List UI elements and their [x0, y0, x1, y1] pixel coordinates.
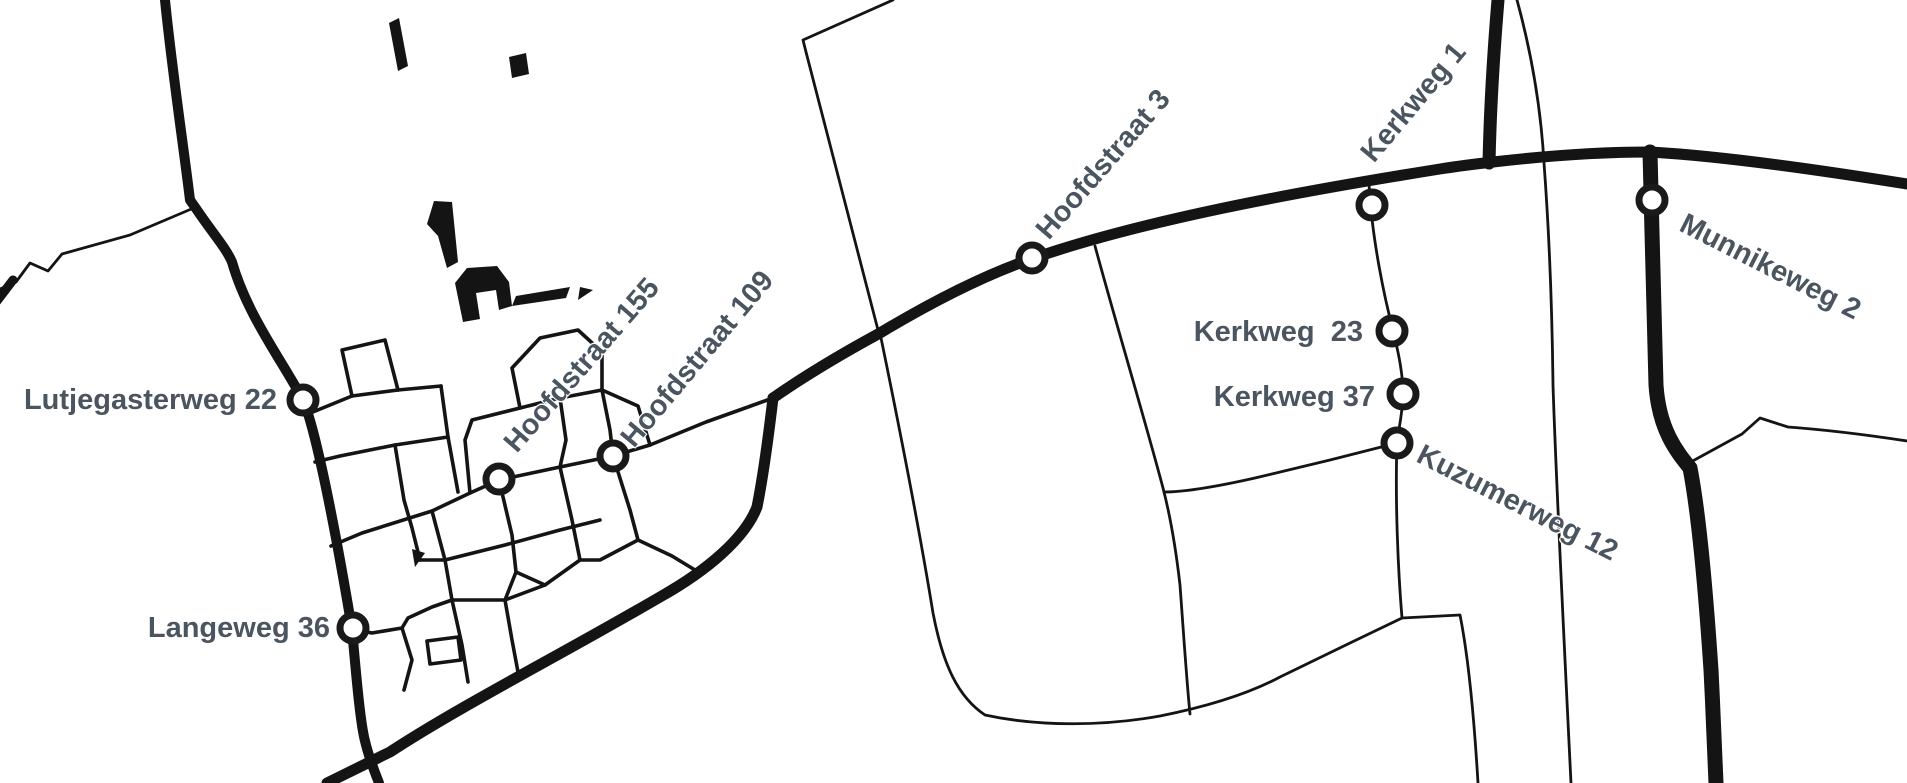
map-canvas: Lutjegasterweg 22 Langeweg 36 Hoofdstraa…	[0, 0, 1907, 783]
marker-hoofdstraat-155[interactable]	[486, 466, 512, 492]
road-kuzumerweg	[1164, 443, 1397, 492]
label-kerkweg-23: Kerkweg 23	[1194, 315, 1363, 349]
marker-kerkweg-1[interactable]	[1359, 192, 1385, 218]
road-village-diagonal	[327, 398, 773, 783]
building-bar	[389, 18, 408, 71]
field-line-west-zigzag	[0, 207, 196, 289]
building-village-wedge	[412, 549, 425, 567]
building-square	[509, 53, 529, 78]
map-roads-layer	[0, 0, 1907, 783]
marker-lutjegasterweg-22[interactable]	[290, 387, 316, 413]
road-north-vertical	[1489, 0, 1498, 163]
building-flag	[427, 201, 458, 268]
field-line-north-east-vertical	[1517, 0, 1571, 783]
marker-hoofdstraat-109[interactable]	[600, 443, 626, 469]
building-arch	[455, 266, 512, 322]
label-lutjegasterweg-22: Lutjegasterweg 22	[24, 383, 277, 417]
road-hoofdstraat-main	[773, 152, 1907, 398]
field-line-mid-vertical	[1095, 246, 1190, 714]
marker-kerkweg-37[interactable]	[1390, 381, 1416, 407]
marker-kerkweg-23[interactable]	[1379, 318, 1405, 344]
marker-langeweg-36[interactable]	[340, 615, 366, 641]
marker-hoofdstraat-3[interactable]	[1019, 245, 1045, 271]
field-line-top-corner	[803, 0, 893, 330]
building-dash	[512, 287, 570, 306]
marker-kuzumerweg-12[interactable]	[1384, 430, 1410, 456]
building-triangle	[578, 287, 593, 300]
field-line-east	[1689, 418, 1907, 463]
marker-munnikeweg-2[interactable]	[1639, 187, 1665, 213]
village-streets	[308, 330, 773, 690]
label-langeweg-36: Langeweg 36	[148, 611, 330, 645]
road-edge-stub	[0, 280, 13, 301]
label-kerkweg-37: Kerkweg 37	[1214, 380, 1375, 414]
field-line-kerkweg-south	[1402, 615, 1478, 783]
